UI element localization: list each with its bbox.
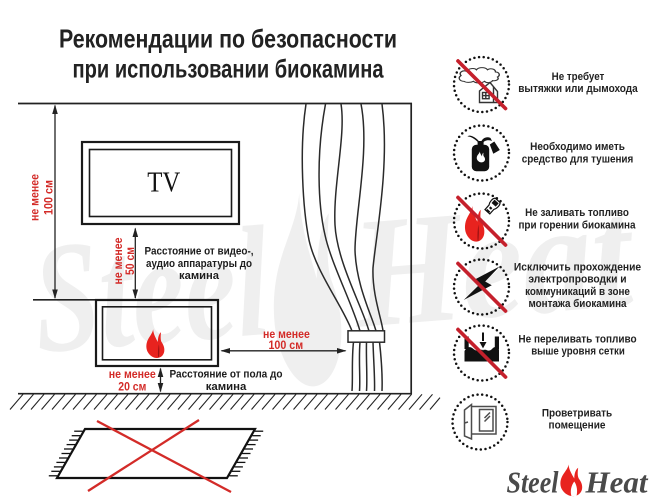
svg-text:не менее100 см: не менее100 см (28, 174, 56, 221)
svg-text:Расстояние от пола докамина: Расстояние от пола докамина (170, 369, 283, 393)
svg-text:не менее20 см: не менее20 см (109, 367, 156, 393)
svg-text:Не требуетвытяжки или дымохода: Не требуетвытяжки или дымохода (518, 71, 638, 95)
svg-text:Heat: Heat (585, 465, 649, 500)
svg-text:при использовании биокамина: при использовании биокамина (73, 53, 384, 83)
svg-text:Не переливать топливовыше уров: Не переливать топливовыше уровня сетки (518, 333, 636, 357)
svg-text:TV: TV (147, 168, 180, 199)
svg-text:Не заливать топливопри горении: Не заливать топливопри горении биокамина (518, 207, 636, 231)
svg-text:Steel: Steel (507, 465, 559, 500)
svg-text:Исключить прохождениеэлектропр: Исключить прохождениеэлектропроводки ико… (514, 262, 641, 311)
svg-text:Рекомендации по безопасности: Рекомендации по безопасности (59, 24, 397, 54)
svg-text:Проветриватьпомещение: Проветриватьпомещение (542, 408, 612, 432)
svg-text:Необходимо иметьсредство для т: Необходимо иметьсредство для тушения (522, 141, 634, 165)
